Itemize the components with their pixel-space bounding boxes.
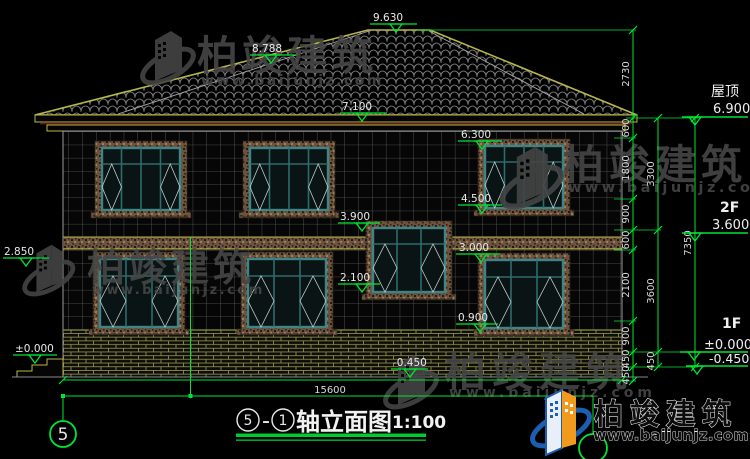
dim-value: 600: [621, 118, 632, 137]
level-text-eave: 7.100: [342, 101, 372, 113]
label-2f: 2F: [720, 200, 739, 216]
window-stairwell: [362, 221, 456, 300]
dim-value: 900: [621, 326, 632, 345]
watermark-left: 柏竣建筑 www.baijunjz.com: [20, 245, 265, 301]
level-text-ground-left: ±0.000: [15, 343, 54, 355]
title-axis-right: 1: [279, 413, 288, 429]
title-scale: 1:100: [392, 413, 446, 433]
level-text-belt-bottom: 3.000: [459, 242, 489, 254]
window-2f-left: [91, 141, 191, 218]
level-text-hip: 8.788: [252, 43, 282, 55]
dim-value: 450: [646, 351, 657, 370]
level-text-base-mid: -0.450: [393, 357, 427, 369]
dim-value: 7350: [683, 230, 694, 255]
title-separator: –: [262, 412, 270, 430]
brand-logo: 柏竣建筑 www.baijunjz.com: [527, 390, 749, 455]
title-block: 5 – 1 轴立面图 1:100: [236, 408, 446, 441]
level-text-f1-window-sill: 0.900: [458, 312, 488, 324]
title-underline-thick: [236, 434, 426, 438]
dim-value: 450: [621, 365, 632, 384]
level-text-f2-window-top: 6.300: [461, 129, 491, 141]
level-text-belt-top: 3.900: [340, 211, 370, 223]
window-2f-mid: [239, 141, 339, 218]
drawing-canvas: 柏竣建筑 www.baijunjz.com 柏竣建筑 www.baijunjz.…: [0, 0, 750, 459]
total-width-dim: 15600: [314, 385, 346, 396]
dim-value: 2730: [621, 61, 632, 86]
level-text-f2-window-sill: 4.500: [461, 193, 491, 205]
brand-logo-name: 柏竣建筑: [594, 397, 738, 431]
dimension-ticks: [629, 26, 699, 385]
entry-steps: [17, 359, 63, 377]
dim-value: 600: [621, 230, 632, 249]
level-text-stair-sill: 2.100: [340, 272, 370, 284]
cad-elevation-screenshot: 柏竣建筑 www.baijunjz.com 柏竣建筑 www.baijunjz.…: [0, 0, 750, 459]
title-name: 轴立面图: [296, 408, 392, 436]
label-roof-level: 6.900: [713, 102, 750, 117]
title-underline-thin: [236, 440, 426, 441]
label-1f: 1F: [722, 316, 741, 332]
brand-logo-url: www.baijunjz.com: [593, 428, 749, 444]
axis-bubble-5-number: 5: [58, 425, 69, 445]
watermark-url: www.baijunjz.com: [568, 180, 750, 196]
dim-value: 1800: [621, 155, 632, 180]
dimension-chain-3: 7350: [683, 230, 694, 255]
dim-value: 900: [621, 204, 632, 223]
dimension-chain-lines: [633, 30, 695, 381]
dim-value: 2100: [621, 272, 632, 297]
dim-value: 3600: [646, 278, 657, 303]
floor-labels: 屋顶 6.900 2F 3.600 1F ±0.000 -0.450: [680, 84, 750, 374]
eave-cornice: [35, 115, 637, 131]
label-2f-level: 3.600: [712, 218, 749, 233]
level-text-ridge: 9.630: [373, 12, 403, 24]
title-axis-left: 5: [244, 413, 253, 429]
label-1f-minus: -0.450: [709, 351, 749, 366]
level-text-porch: 2.850: [4, 246, 34, 258]
watermark-url: www.baijunjz.com: [201, 73, 384, 89]
label-roof: 屋顶: [711, 84, 739, 100]
watermark-url: www.baijunjz.com: [92, 283, 265, 298]
dim-value: 3300: [646, 161, 657, 186]
